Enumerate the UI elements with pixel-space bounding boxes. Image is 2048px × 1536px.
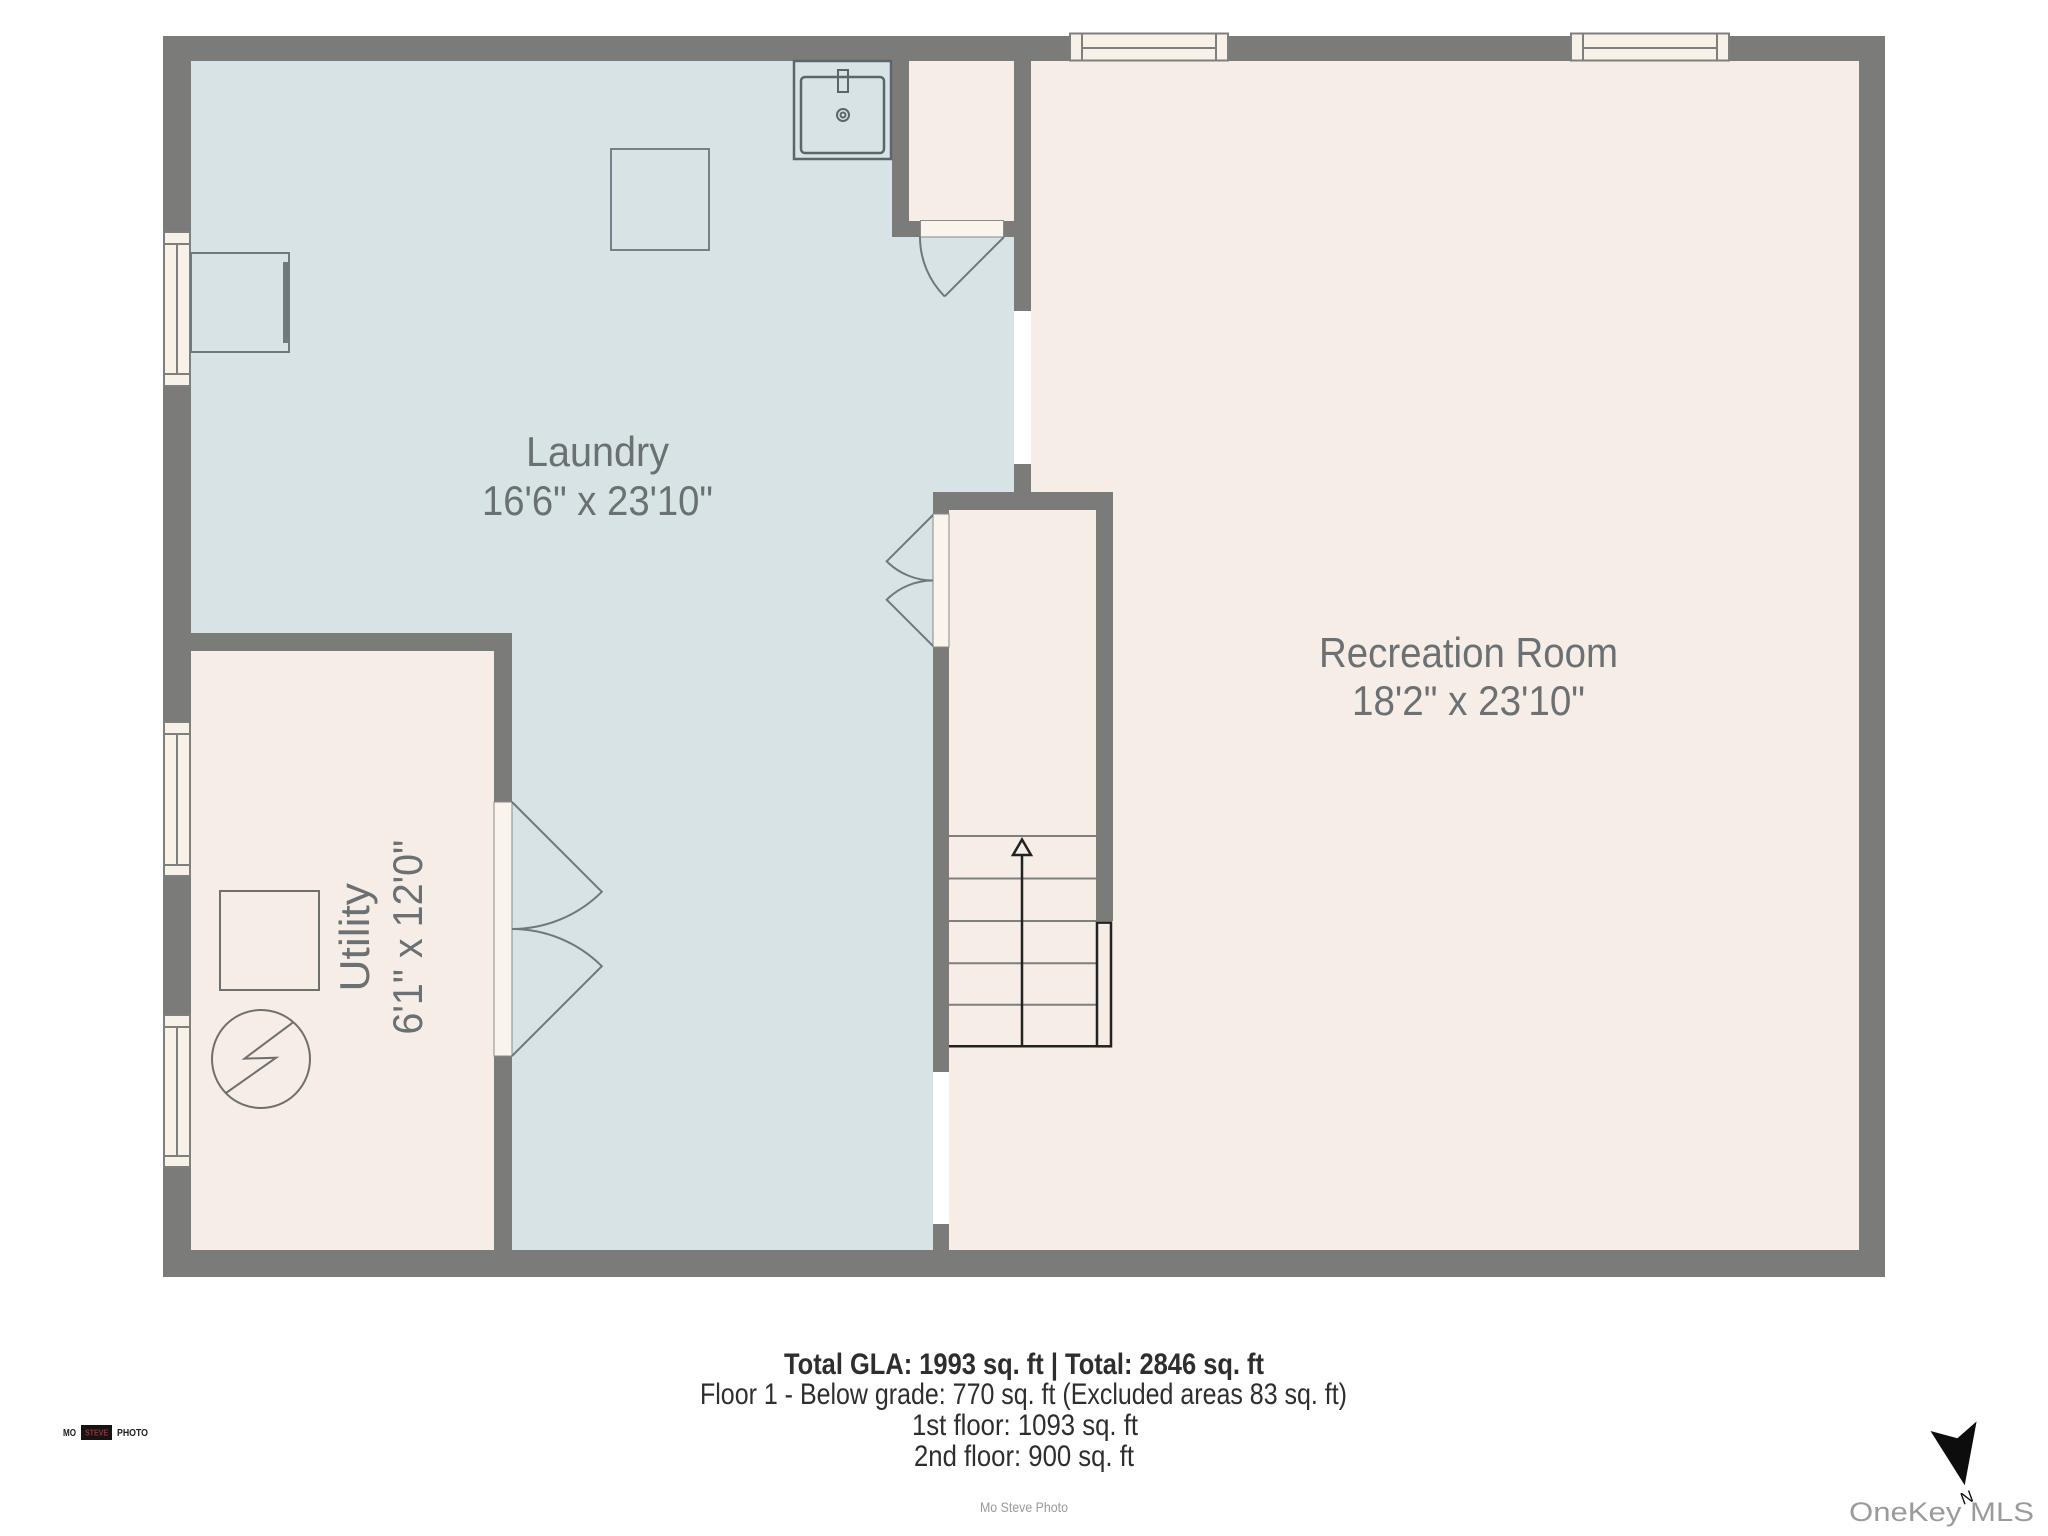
svg-text:2nd floor: 900 sq. ft: 2nd floor: 900 sq. ft [914,1440,1135,1473]
svg-text:Recreation Room: Recreation Room [1319,629,1618,676]
svg-text:1st floor: 1093 sq. ft: 1st floor: 1093 sq. ft [912,1409,1139,1442]
svg-text:16'6" x 23'10": 16'6" x 23'10" [482,477,713,524]
svg-text:Floor 1 - Below grade: 770 sq.: Floor 1 - Below grade: 770 sq. ft (Exclu… [700,1378,1347,1411]
svg-text:Laundry: Laundry [526,428,669,475]
svg-text:Total GLA: 1993 sq. ft | Total: Total GLA: 1993 sq. ft | Total: 2846 sq.… [784,1348,1264,1381]
svg-text:PHOTO: PHOTO [117,1428,148,1439]
svg-text:STEVE: STEVE [85,1429,109,1438]
svg-text:Mo Steve Photo: Mo Steve Photo [980,1499,1068,1515]
svg-text:18'2" x 23'10": 18'2" x 23'10" [1352,677,1585,724]
svg-text:MO: MO [63,1428,76,1439]
svg-text:OneKey MLS: OneKey MLS [1849,1497,2034,1527]
svg-text:6'1" x 12'0": 6'1" x 12'0" [384,840,431,1035]
svg-text:Utility: Utility [331,883,378,992]
